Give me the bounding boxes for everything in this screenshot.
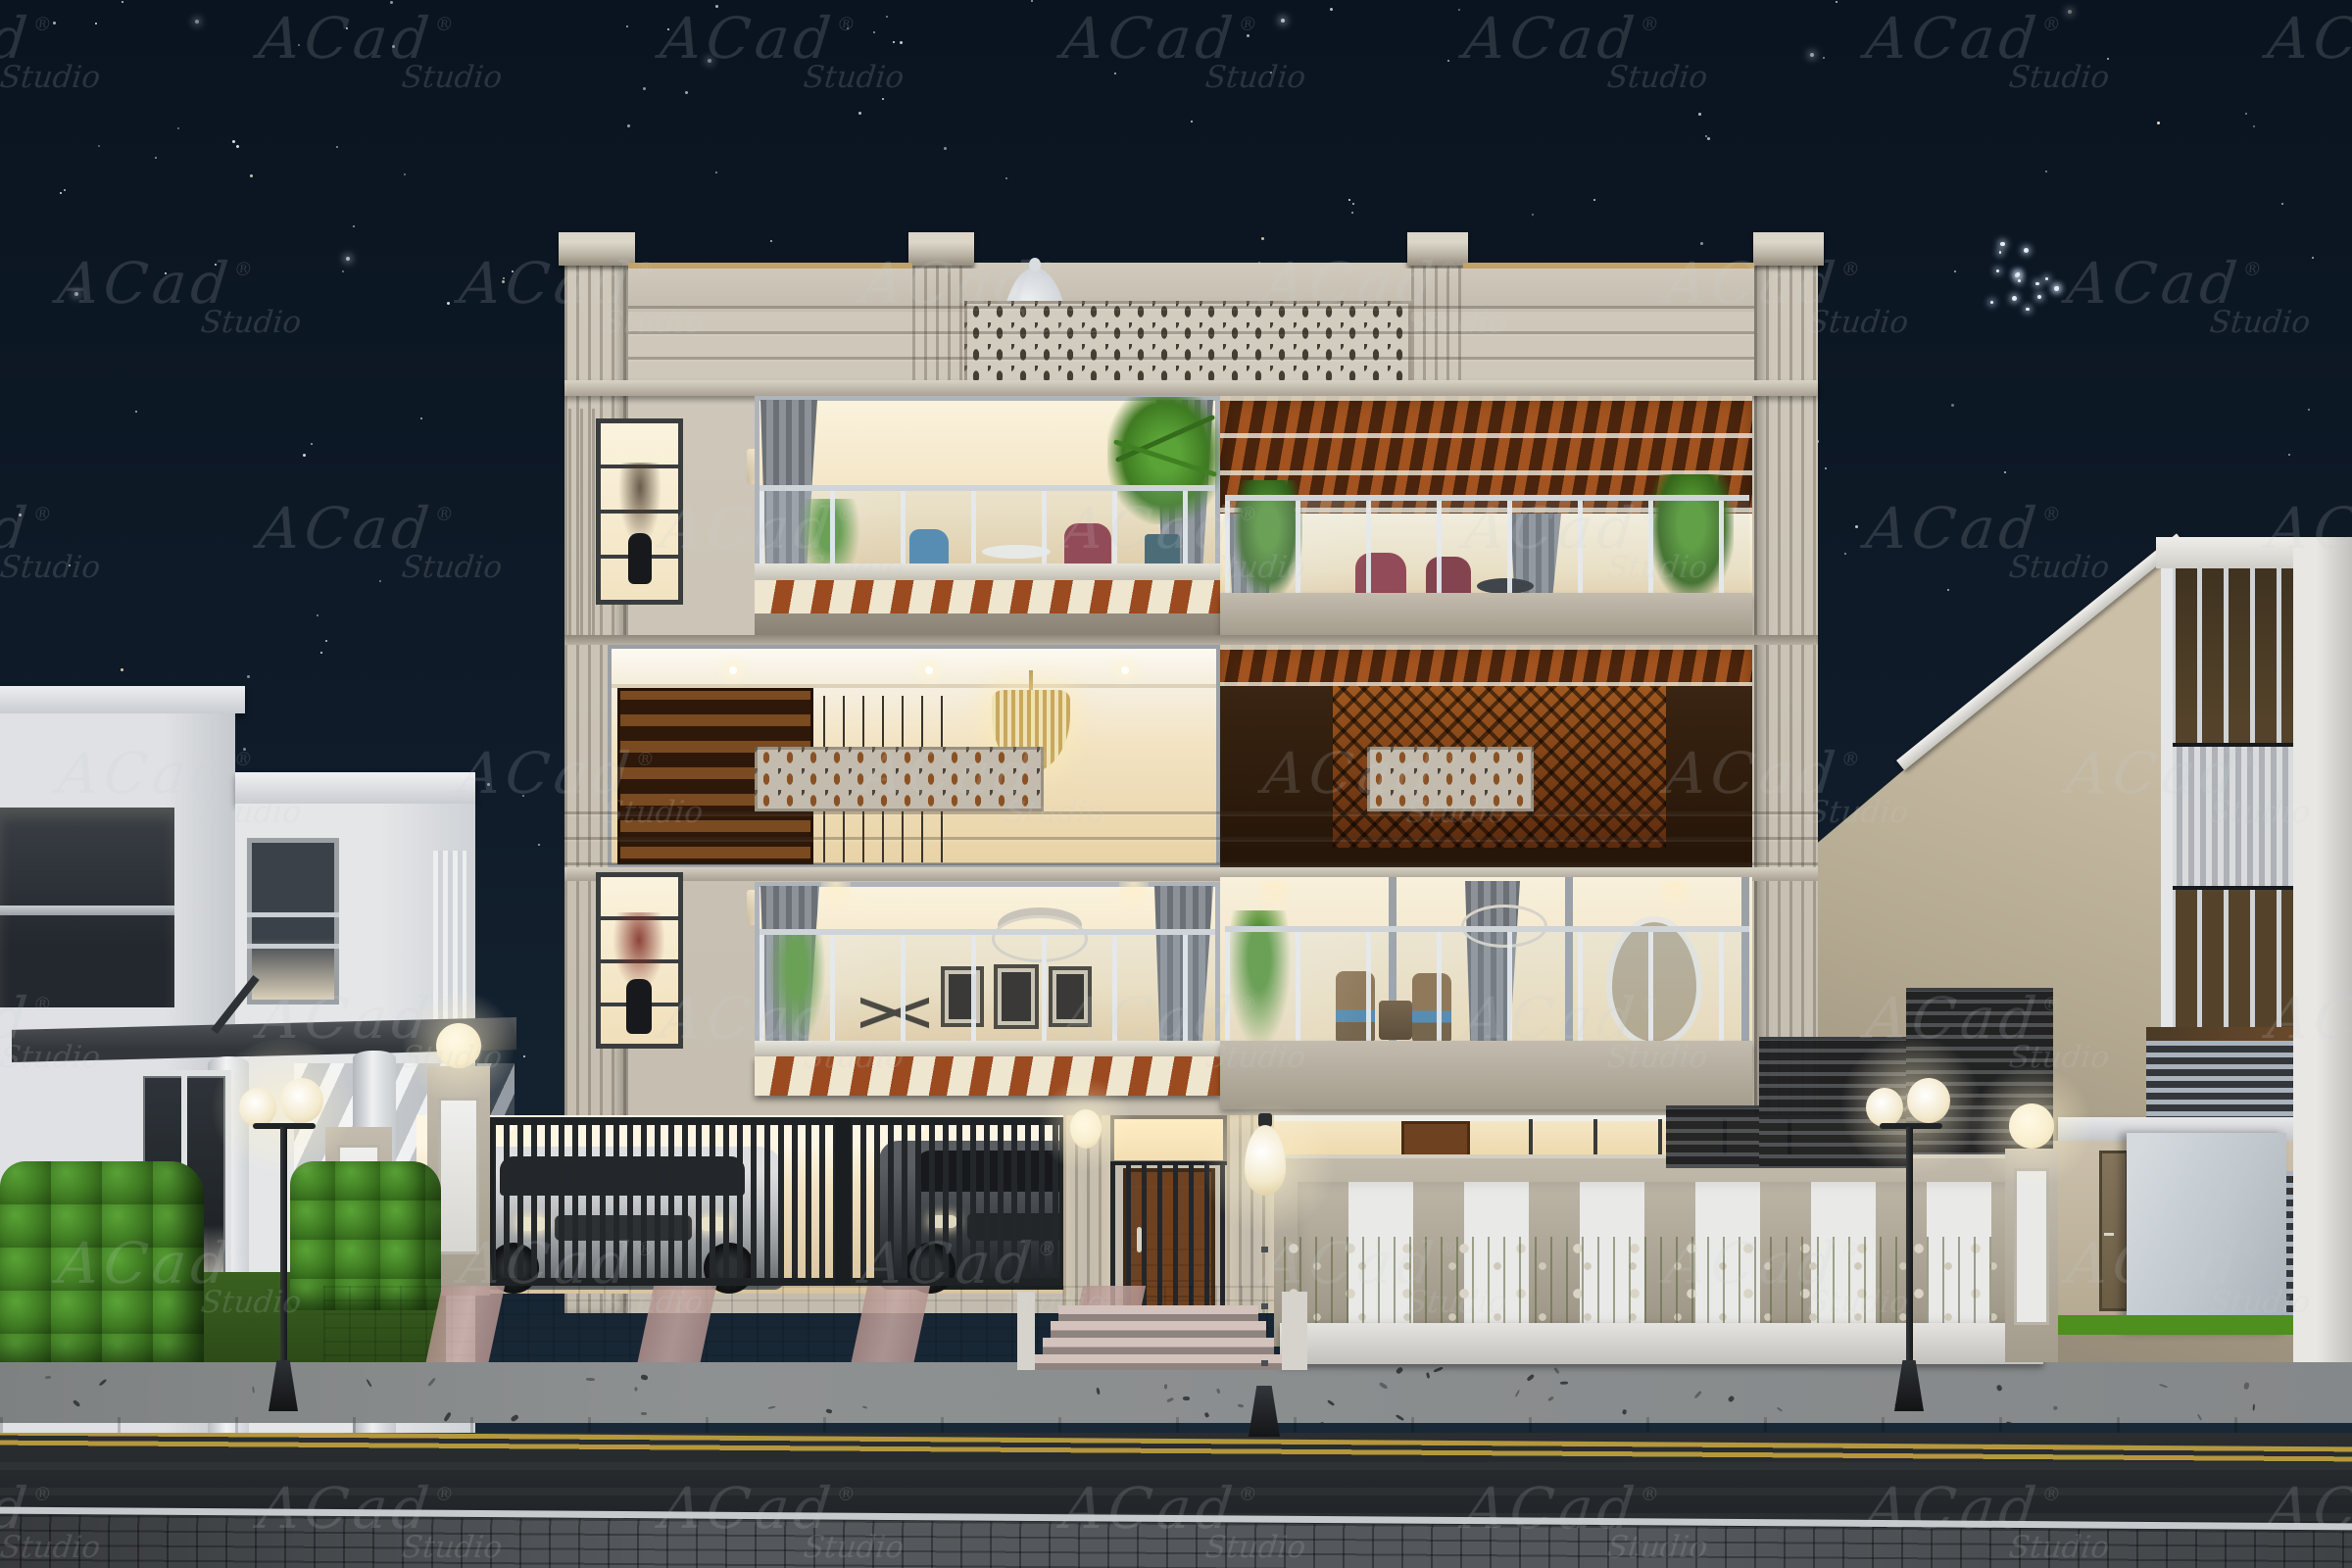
star xyxy=(2107,58,2109,60)
star xyxy=(1447,60,1449,62)
star xyxy=(379,580,381,582)
leaf-debris xyxy=(1554,1367,1560,1374)
star xyxy=(53,22,56,24)
star xyxy=(122,1,123,3)
star xyxy=(1855,525,1858,528)
leaf-debris xyxy=(366,1379,372,1388)
star xyxy=(64,189,66,191)
curtain-wall-edge xyxy=(2161,568,2173,1078)
leaf-debris xyxy=(1433,1367,1443,1373)
leaf-debris xyxy=(1694,1391,1702,1399)
star xyxy=(392,45,395,48)
leaf-debris xyxy=(1527,1374,1535,1382)
star xyxy=(232,140,235,143)
lamp-pole xyxy=(1906,1127,1913,1366)
terrace-glass-railing-top xyxy=(1225,495,1749,608)
left-house-roof-slab xyxy=(0,686,245,713)
leaf-debris xyxy=(641,1412,647,1415)
star xyxy=(342,270,344,272)
leaf-debris xyxy=(1163,1385,1167,1390)
striped-awning xyxy=(755,1056,1220,1096)
leaf-debris xyxy=(1182,1396,1189,1399)
leaf-debris xyxy=(98,1378,107,1387)
stair-screen-low xyxy=(1666,1105,1759,1168)
star-cluster-star xyxy=(2035,282,2039,286)
left-house-balcony-opening xyxy=(0,808,174,1007)
star xyxy=(1810,53,1814,57)
leaf-debris xyxy=(2159,1384,2168,1389)
lamp-pole xyxy=(280,1127,287,1370)
leaf-debris xyxy=(586,1378,595,1381)
window-first-left xyxy=(601,877,678,1044)
gate-centre-post xyxy=(835,1117,851,1286)
plant-vase xyxy=(626,979,652,1034)
star xyxy=(317,614,318,616)
star xyxy=(325,640,327,642)
star xyxy=(886,16,888,18)
star xyxy=(250,174,253,177)
star xyxy=(2308,409,2310,411)
window-top-left xyxy=(601,423,678,600)
lamp-globe xyxy=(1866,1088,1903,1127)
star xyxy=(346,27,348,29)
hedge-left xyxy=(0,1161,204,1369)
wall-washer-glow xyxy=(1119,882,1149,929)
left-house-mid-slab xyxy=(235,772,475,804)
street-lamp-twin-right xyxy=(1852,1060,1970,1421)
window-rail xyxy=(247,912,339,917)
star xyxy=(667,28,669,30)
star xyxy=(1005,177,1007,179)
leaf-debris xyxy=(1777,1406,1783,1411)
wall-washer-glow xyxy=(1660,882,1690,929)
star xyxy=(944,147,947,150)
driveway-stripe xyxy=(424,1286,505,1370)
star xyxy=(311,443,313,445)
door-handle xyxy=(2104,1233,2114,1236)
star xyxy=(1825,467,1827,469)
leaf-debris xyxy=(2244,1382,2250,1390)
chandelier-cord xyxy=(1029,670,1033,692)
star xyxy=(155,157,157,159)
leaf-debris xyxy=(767,1405,776,1409)
lamp-glow xyxy=(1037,1076,1135,1174)
ceiling-spotlight xyxy=(729,666,737,674)
leaf-debris xyxy=(72,1399,80,1408)
leaf-debris xyxy=(2053,1406,2058,1410)
lounge-fascia xyxy=(1220,1041,1752,1109)
tower-cap xyxy=(1407,232,1468,266)
star xyxy=(1951,404,1954,407)
star xyxy=(627,124,630,127)
star xyxy=(60,192,62,194)
star xyxy=(715,171,717,173)
star xyxy=(303,454,306,457)
lamp-glow xyxy=(400,988,517,1105)
lamp-glow xyxy=(1968,1062,2095,1190)
leaf-debris xyxy=(1560,1382,1568,1385)
terrace-fascia-top xyxy=(1220,593,1752,637)
star xyxy=(858,112,861,115)
entrance-step-sidewall xyxy=(1017,1292,1035,1370)
star xyxy=(336,146,338,148)
star xyxy=(121,668,123,671)
pillar-panel xyxy=(438,1098,479,1254)
star xyxy=(420,417,422,419)
wall-washer-glow xyxy=(1260,882,1290,929)
leaf-debris xyxy=(634,1388,637,1392)
ceiling-spotlight xyxy=(1121,666,1129,674)
star xyxy=(1348,199,1350,201)
balustrade-lattice-right xyxy=(1367,747,1534,811)
floor-band xyxy=(564,635,1818,645)
left-house-window xyxy=(247,838,339,1004)
coffered-ceiling xyxy=(612,649,1216,688)
leaf-debris xyxy=(1548,1396,1554,1400)
star xyxy=(177,127,179,129)
lamp-base xyxy=(1249,1386,1280,1437)
lamp-globe xyxy=(1907,1078,1950,1123)
star-cluster-star xyxy=(2037,295,2041,299)
ground-door xyxy=(2099,1151,2129,1311)
star xyxy=(1698,113,1701,116)
lamp-base xyxy=(269,1360,298,1411)
leaf-debris xyxy=(45,1376,51,1380)
star xyxy=(298,44,300,46)
leaf-debris xyxy=(428,1378,436,1387)
main-gate xyxy=(490,1117,1063,1286)
driveway-stripe xyxy=(636,1286,716,1370)
star xyxy=(1836,1,1837,3)
leaf-debris xyxy=(641,1374,649,1381)
tower-cap xyxy=(559,232,635,266)
star xyxy=(1352,203,1354,205)
leaf-debris xyxy=(2252,1404,2255,1411)
leaf-debris xyxy=(825,1409,832,1414)
star xyxy=(503,277,505,279)
star xyxy=(195,20,199,24)
star xyxy=(893,41,895,43)
star xyxy=(2068,10,2072,14)
star xyxy=(1458,9,1460,11)
star xyxy=(346,257,350,261)
tower-cap xyxy=(908,232,974,266)
star xyxy=(2253,125,2255,127)
middle-parapet-band xyxy=(564,811,1818,870)
leaf-debris xyxy=(1623,1409,1628,1415)
leaf-debris xyxy=(1728,1396,1735,1402)
star xyxy=(715,5,718,8)
star xyxy=(2281,203,2283,205)
star xyxy=(1954,270,1956,272)
ceiling-spotlight xyxy=(925,666,933,674)
star-cluster-star xyxy=(2055,286,2059,290)
pier-grooves xyxy=(568,409,604,644)
window-rail xyxy=(247,944,339,949)
leaf-debris xyxy=(1327,1399,1335,1406)
star-cluster-star xyxy=(1996,269,1999,272)
star xyxy=(69,564,71,566)
star xyxy=(1823,57,1825,59)
star xyxy=(502,280,505,283)
street-lamp-teardrop-centre xyxy=(1227,1105,1305,1437)
star xyxy=(626,25,628,27)
star xyxy=(512,270,514,272)
star-cluster-star xyxy=(2012,296,2017,301)
wall-washer-glow xyxy=(821,882,851,929)
star xyxy=(2004,471,2006,473)
star xyxy=(95,23,97,24)
star-cluster-star xyxy=(2017,272,2020,275)
leaf-debris xyxy=(1995,1384,2002,1392)
star-cluster-star xyxy=(1990,301,1993,304)
lamp-globe xyxy=(239,1088,276,1127)
star xyxy=(882,98,884,100)
pillar-panel xyxy=(2014,1168,2049,1325)
curtain-band xyxy=(2171,743,2298,890)
right-edge-pilaster xyxy=(2293,537,2352,1365)
star xyxy=(643,87,646,90)
street-lamp-twin-left xyxy=(225,1064,343,1417)
balcony-rail xyxy=(0,906,174,915)
star xyxy=(873,31,875,33)
star-cluster-star xyxy=(2024,248,2029,253)
lamp-globe xyxy=(280,1078,323,1123)
star xyxy=(390,1,393,4)
star-cluster-star xyxy=(2045,277,2048,280)
star xyxy=(1707,137,1710,140)
leaf-debris xyxy=(1096,1387,1100,1394)
balustrade-lattice-left xyxy=(755,747,1044,811)
star xyxy=(1031,0,1033,2)
driveway-stripe xyxy=(850,1286,930,1370)
star xyxy=(1191,121,1193,122)
striped-awning xyxy=(755,580,1220,615)
star-cluster-star xyxy=(2018,279,2021,282)
leaf-debris xyxy=(862,1405,867,1409)
star xyxy=(320,652,322,654)
leaf-debris xyxy=(1167,1397,1174,1402)
star xyxy=(19,514,22,516)
star xyxy=(1532,214,1534,216)
star-cluster-star xyxy=(2026,308,2030,312)
star xyxy=(353,225,355,227)
leaf-debris xyxy=(1396,1367,1404,1375)
star xyxy=(1281,19,1285,23)
star xyxy=(1247,34,1249,37)
star xyxy=(404,173,406,175)
star xyxy=(1330,8,1333,11)
star xyxy=(74,292,78,296)
leaf-debris xyxy=(1425,1372,1430,1379)
star xyxy=(1593,199,1595,201)
star xyxy=(135,411,137,413)
star-cluster-star xyxy=(1999,251,2001,253)
star xyxy=(847,27,849,29)
upper-groove-band xyxy=(628,306,1754,384)
star xyxy=(1270,72,1272,73)
star xyxy=(2157,122,2160,124)
grey-gate-panel xyxy=(2127,1133,2286,1333)
leaf-debris xyxy=(1379,1382,1389,1391)
tower-cap xyxy=(1753,232,1824,266)
star-cluster-star xyxy=(2000,242,2004,246)
star xyxy=(236,145,239,148)
star xyxy=(1351,212,1353,214)
star xyxy=(708,59,711,63)
star xyxy=(685,91,688,94)
dome-knob xyxy=(1029,258,1041,271)
star xyxy=(165,272,167,274)
star xyxy=(900,41,903,44)
architectural-night-render: ACad®StudioACad®StudioACad®StudioACad®St… xyxy=(0,0,2352,1568)
road xyxy=(0,1433,2352,1568)
star xyxy=(2045,171,2047,172)
plant-vase xyxy=(628,533,652,584)
lamp-base xyxy=(1894,1360,1924,1411)
star xyxy=(2312,257,2314,259)
star xyxy=(98,145,100,147)
star xyxy=(215,264,217,266)
upper-ledge xyxy=(564,380,1818,396)
sidewalk-far xyxy=(0,1362,2352,1423)
leaf-debris xyxy=(1514,1390,1520,1397)
star xyxy=(447,302,450,305)
curtain-wall xyxy=(2171,568,2298,1078)
leaf-debris xyxy=(1216,1389,1220,1394)
star xyxy=(2288,454,2290,456)
road-centre-double-yellow-line xyxy=(0,1433,2352,1462)
star xyxy=(1114,73,1116,74)
star xyxy=(2245,113,2247,115)
